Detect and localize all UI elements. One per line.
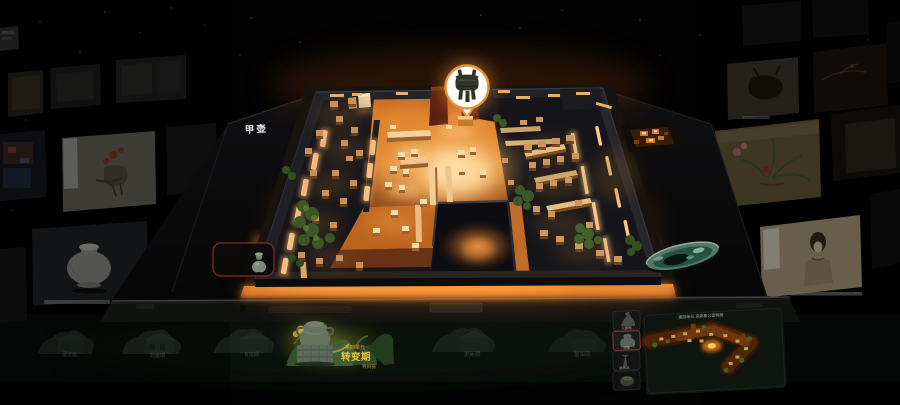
svg-text:更新期: 更新期: [464, 350, 481, 358]
svg-text:繁荣期: 繁荣期: [574, 350, 591, 358]
svg-text:人面鼎: 人面鼎: [621, 325, 632, 330]
svg-text:青铜器: 青铜器: [362, 363, 376, 370]
svg-text:鼎盛期: 鼎盛期: [150, 352, 165, 359]
svg-text:育成期: 育成期: [244, 351, 259, 358]
svg-text:第四单元: 第四单元: [345, 344, 365, 351]
svg-text:觥筹具: 觥筹具: [619, 365, 630, 370]
svg-text:甲壶: 甲壶: [245, 123, 269, 136]
svg-text:展览馆: 展览馆: [62, 351, 77, 358]
svg-text:转变期: 转变期: [341, 351, 371, 363]
svg-text:甲壶: 甲壶: [623, 345, 631, 350]
